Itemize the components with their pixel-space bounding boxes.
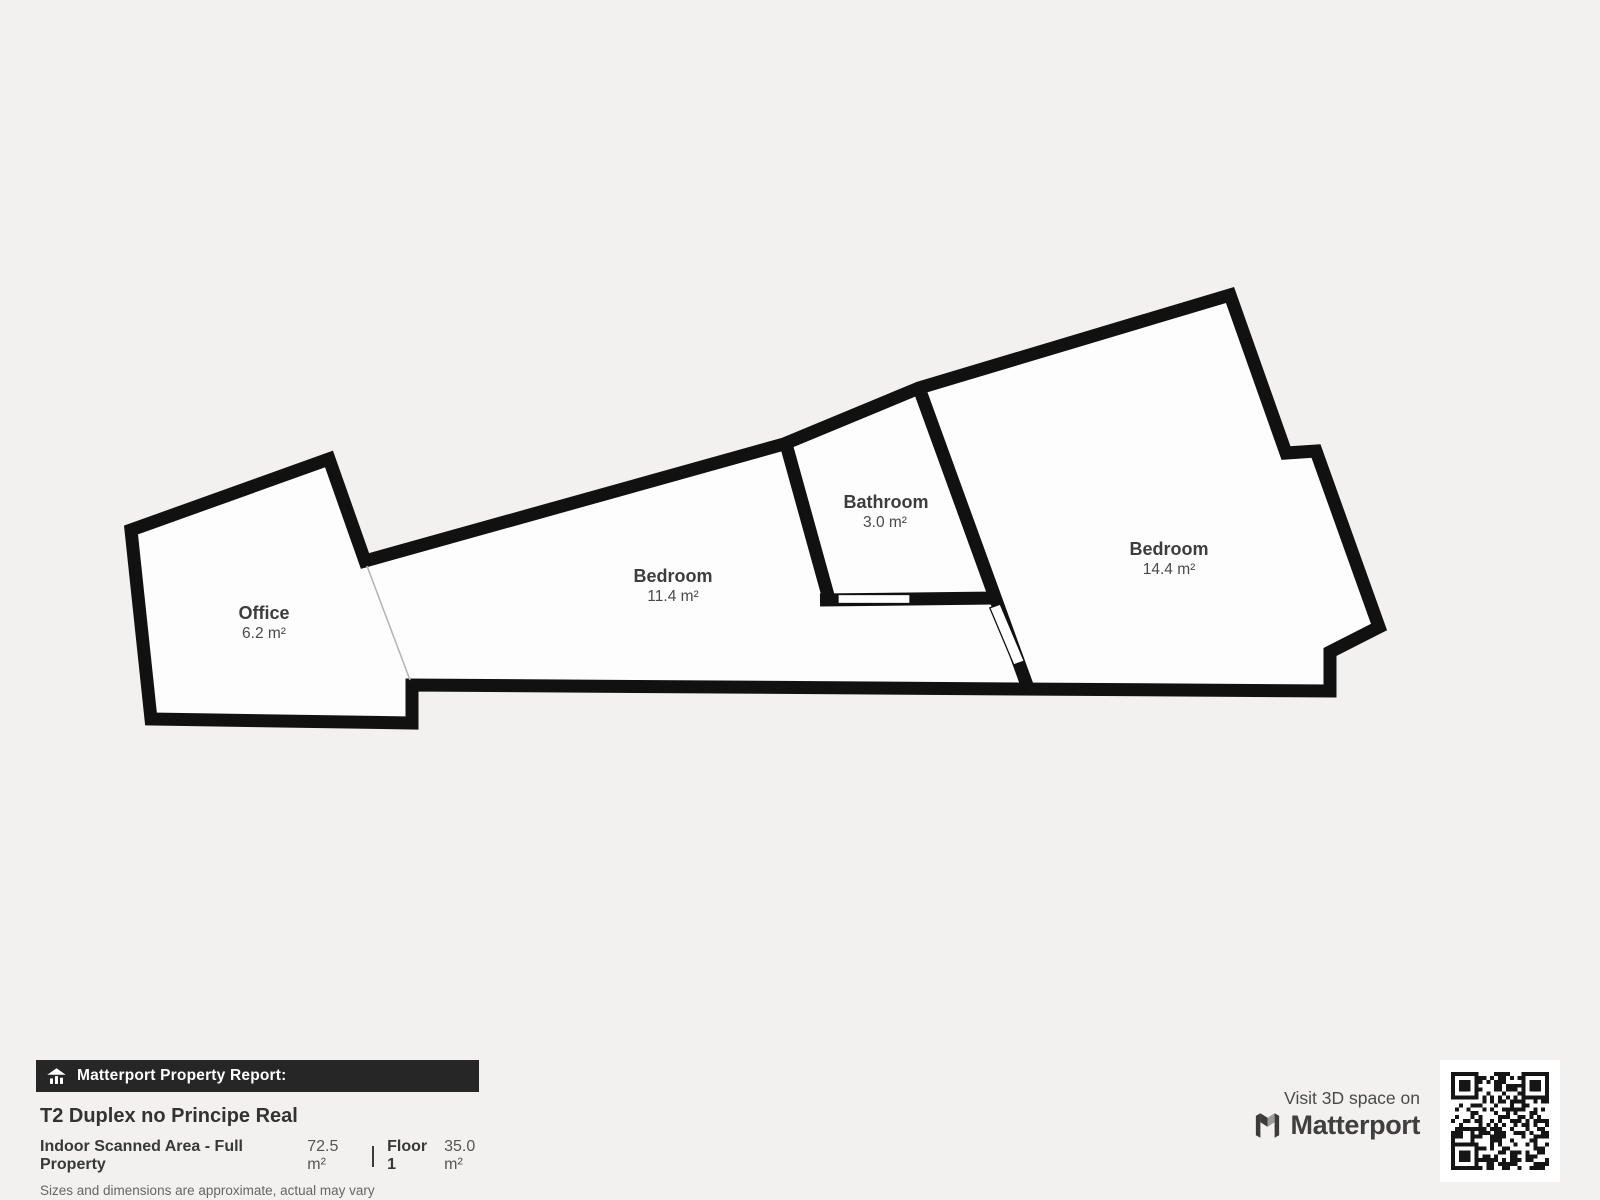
room-area-bedroom-1: 11.4 m²: [647, 588, 698, 605]
visit-3d-text: Visit 3D space on: [1284, 1088, 1420, 1109]
bathroom-door-opening: [838, 595, 910, 604]
report-badge: Matterport Property Report:: [36, 1060, 479, 1092]
matterport-m-icon: [1252, 1110, 1283, 1141]
floor-interior: [131, 295, 1379, 723]
room-label-bedroom-2: Bedroom: [1129, 539, 1208, 559]
disclaimer-text: Sizes and dimensions are approximate, ac…: [40, 1183, 496, 1198]
property-title: T2 Duplex no Principe Real: [40, 1105, 496, 1128]
report-badge-label: Matterport Property Report:: [77, 1067, 287, 1085]
qr-code: [1440, 1060, 1560, 1182]
room-area-bedroom-2: 14.4 m²: [1143, 561, 1196, 578]
house-chart-icon: [46, 1066, 67, 1087]
qr-code-pattern: [1451, 1072, 1549, 1170]
area-info-line: Indoor Scanned Area - Full Property 72.5…: [40, 1138, 496, 1174]
room-label-office: Office: [238, 603, 289, 623]
info-separator: [372, 1146, 374, 1167]
room-label-bathroom: Bathroom: [844, 492, 929, 512]
floor-value: 35.0 m²: [444, 1138, 496, 1174]
floor-label: Floor 1: [387, 1138, 438, 1174]
room-area-office: 6.2 m²: [242, 625, 286, 642]
matterport-wordmark: Matterport: [1291, 1110, 1421, 1141]
room-area-bathroom: 3.0 m²: [863, 514, 907, 531]
report-footer: Matterport Property Report: T2 Duplex no…: [36, 1060, 496, 1198]
room-label-bedroom-1: Bedroom: [633, 566, 712, 586]
page: Office 6.2 m² Bedroom 11.4 m² Bathroom 3…: [0, 0, 1600, 1200]
matterport-logo: Matterport: [1252, 1110, 1421, 1141]
floor-plan: Office 6.2 m² Bedroom 11.4 m² Bathroom 3…: [0, 0, 1600, 1200]
scanned-area-value: 72.5 m²: [307, 1138, 359, 1174]
scanned-area-label: Indoor Scanned Area - Full Property: [40, 1138, 301, 1174]
